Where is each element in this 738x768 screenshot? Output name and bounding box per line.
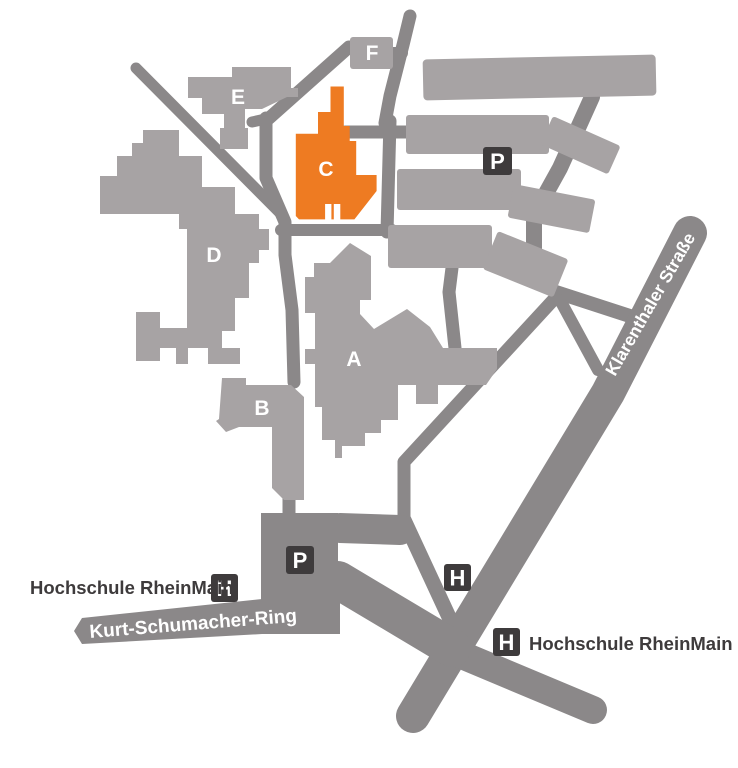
- svg-text:Hochschule RheinMain: Hochschule RheinMain: [529, 633, 733, 654]
- svg-text:B: B: [254, 397, 269, 420]
- svg-text:D: D: [206, 244, 221, 267]
- svg-text:H: H: [499, 630, 515, 655]
- svg-text:C: C: [318, 158, 333, 181]
- svg-text:E: E: [231, 86, 245, 109]
- svg-text:A: A: [346, 348, 361, 371]
- svg-text:Hochschule RheinMain: Hochschule RheinMain: [30, 577, 234, 598]
- svg-text:F: F: [366, 42, 379, 65]
- svg-text:P: P: [293, 548, 308, 573]
- svg-text:P: P: [490, 149, 505, 174]
- svg-text:H: H: [450, 566, 466, 591]
